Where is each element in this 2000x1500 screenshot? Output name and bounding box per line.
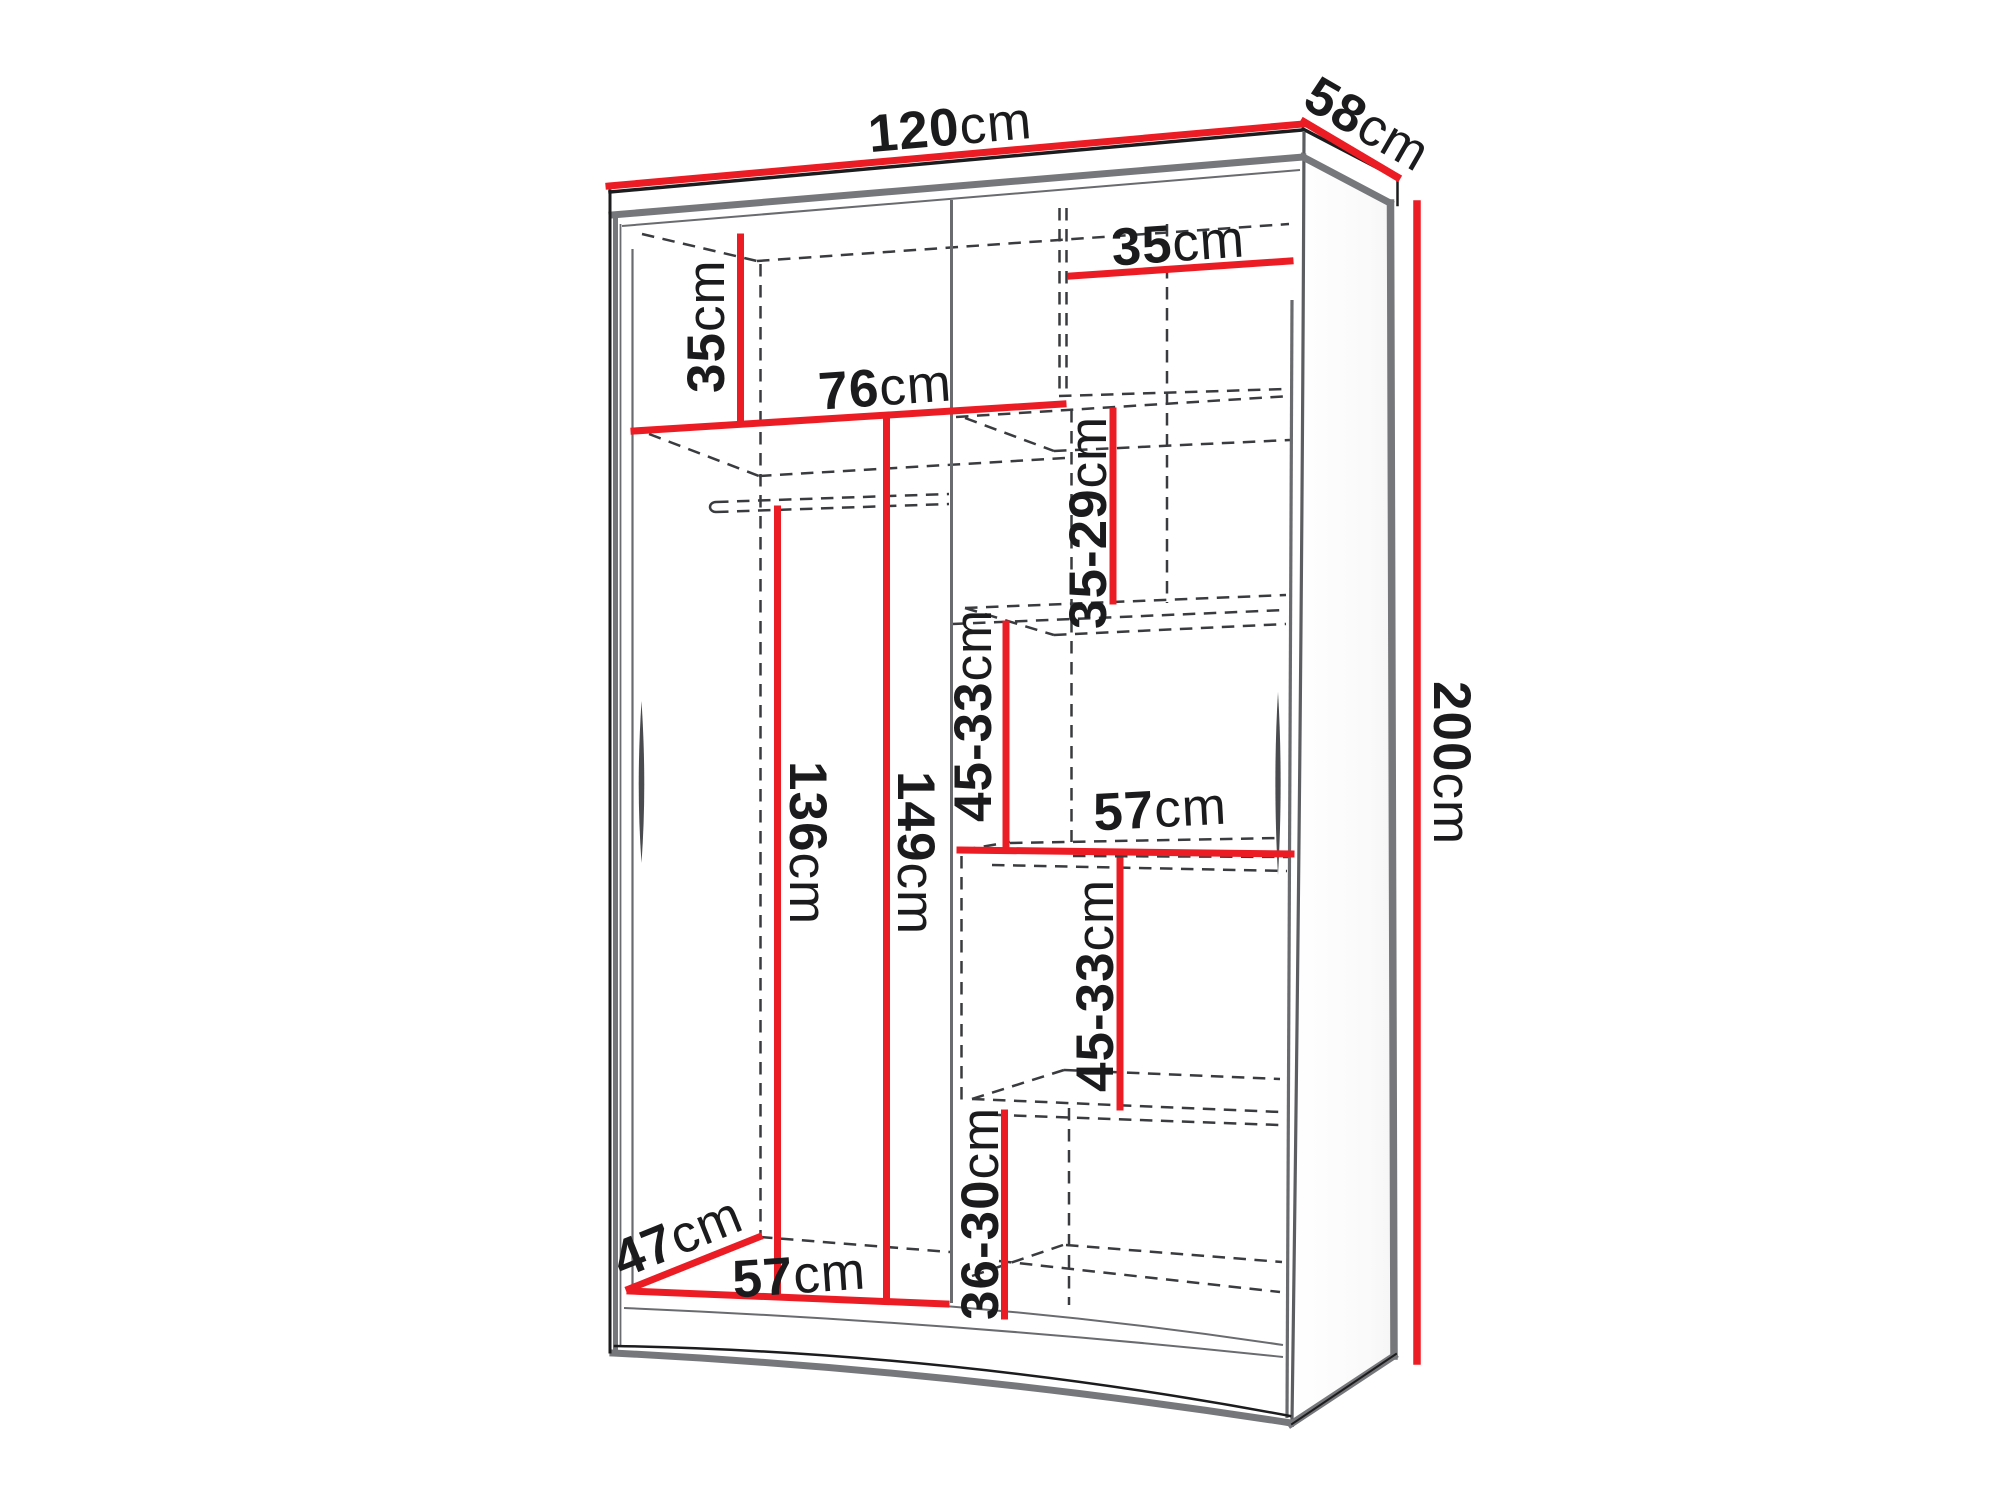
svg-text:136cm: 136cm [778, 761, 837, 925]
svg-text:57cm: 57cm [730, 1241, 867, 1309]
svg-text:200cm: 200cm [1422, 681, 1481, 845]
svg-text:35cm: 35cm [1109, 209, 1246, 277]
svg-text:35-29cm: 35-29cm [1059, 416, 1118, 629]
svg-text:57cm: 57cm [1092, 777, 1229, 843]
svg-text:45-33cm: 45-33cm [944, 609, 1003, 822]
svg-text:76cm: 76cm [816, 353, 953, 421]
svg-text:35cm: 35cm [677, 259, 736, 393]
svg-text:36-30cm: 36-30cm [951, 1107, 1010, 1320]
svg-text:149cm: 149cm [886, 771, 945, 935]
svg-text:45-33cm: 45-33cm [1066, 879, 1125, 1092]
